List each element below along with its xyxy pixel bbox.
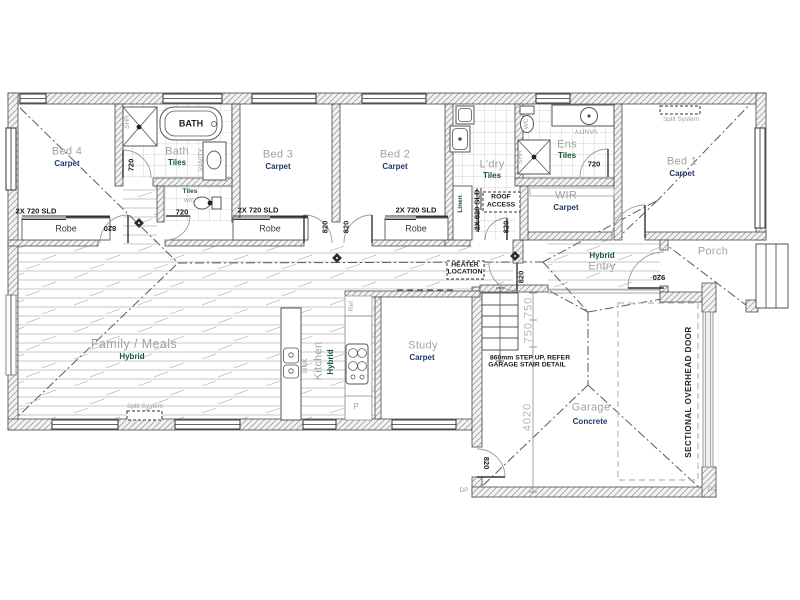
floor-plan: Bed 4 Carpet Bed 3 Carpet Bed 2 Carpet B… (0, 0, 800, 600)
split-system-box-bed1 (660, 106, 700, 114)
toilet-wc (194, 197, 221, 209)
garage-roof-outline (618, 303, 698, 480)
kitchen-island (281, 308, 301, 420)
garage-door (703, 312, 713, 467)
heater-location-box (447, 261, 484, 279)
vanity-ens (552, 105, 614, 126)
shower-ens (518, 140, 550, 174)
floorplan-linework (0, 0, 800, 600)
split-system-box-family (127, 411, 162, 420)
toilet-ens (520, 106, 534, 133)
shower-bath (123, 107, 157, 146)
roof-access-box (483, 192, 520, 212)
porch-steps (756, 244, 788, 308)
cooktop (346, 344, 368, 384)
